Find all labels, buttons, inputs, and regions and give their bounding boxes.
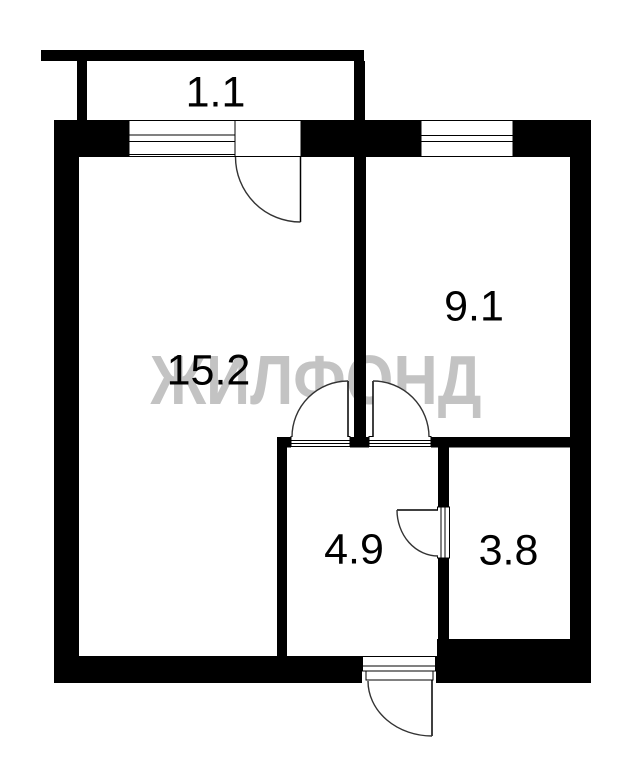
svg-text:9.1: 9.1	[444, 283, 504, 331]
svg-text:1.1: 1.1	[186, 69, 246, 117]
svg-text:4.9: 4.9	[324, 526, 384, 574]
svg-text:3.8: 3.8	[479, 527, 539, 575]
svg-text:15.2: 15.2	[167, 347, 251, 395]
